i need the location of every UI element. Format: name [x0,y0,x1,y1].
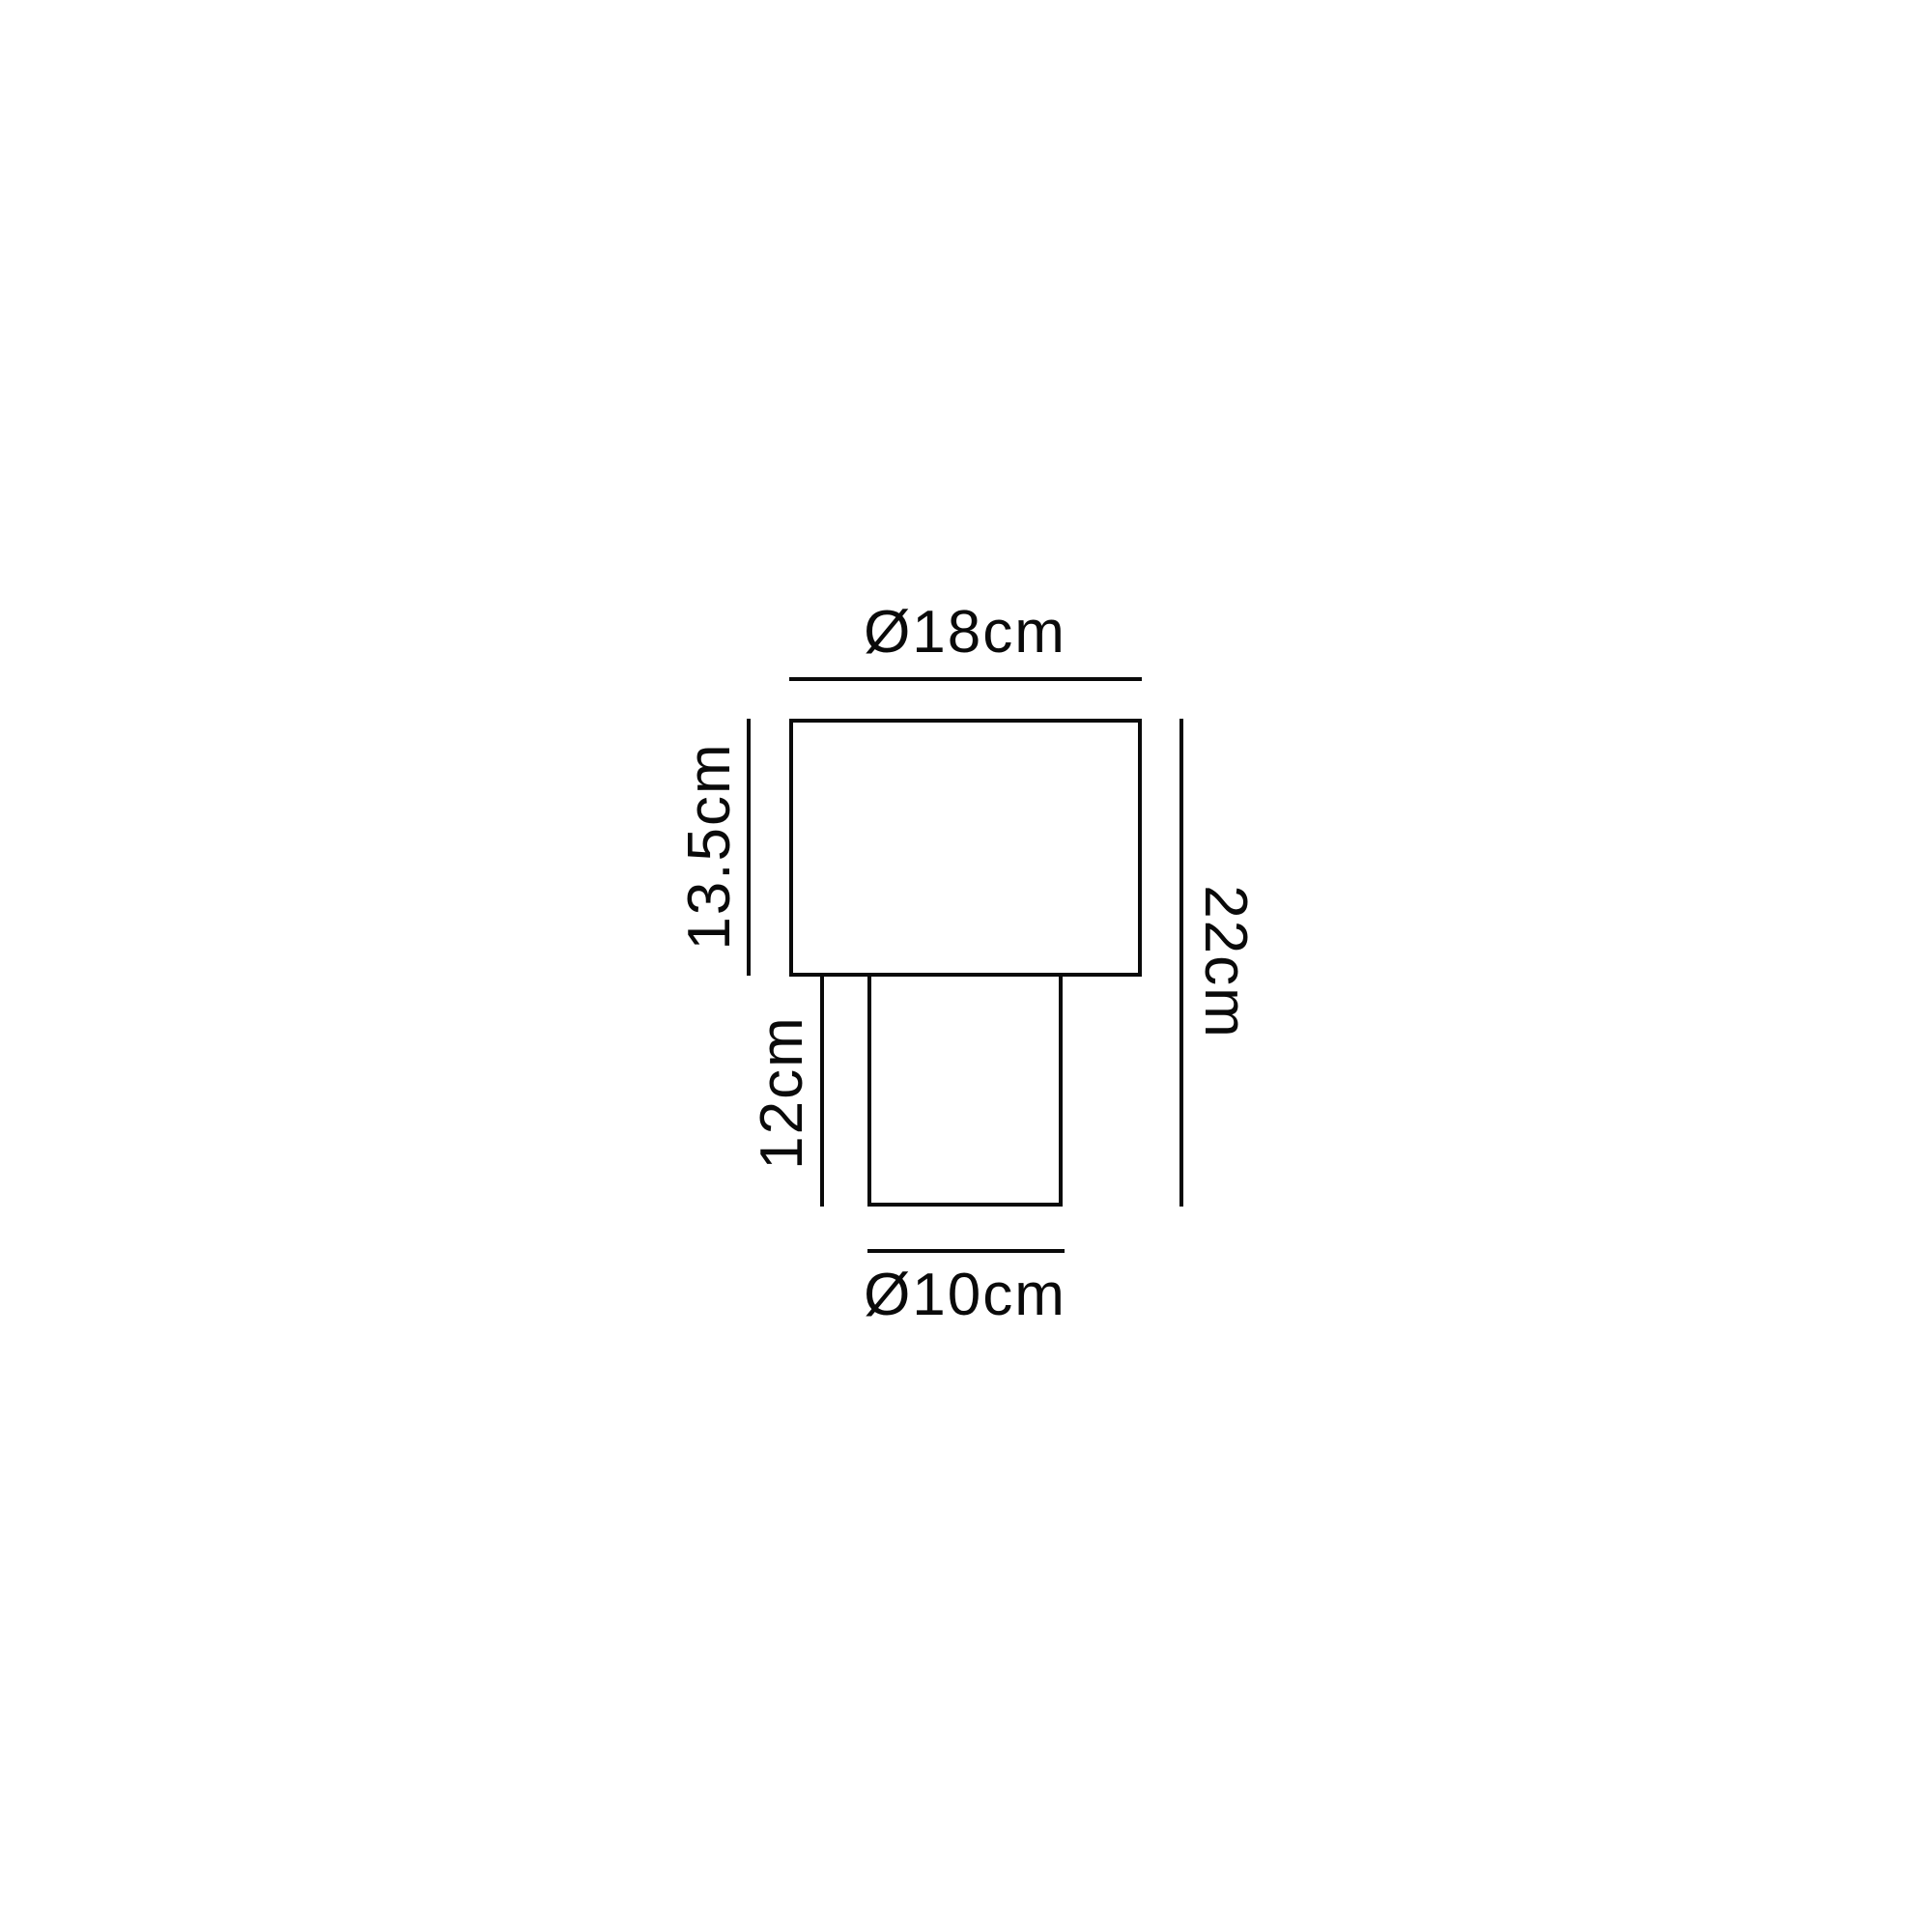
base-height-dimension-line [820,977,824,1207]
lamp-shade-outline [789,719,1142,977]
shade-diameter-dimension-line [789,677,1142,681]
total-height-label: 22cm [1196,856,1254,1068]
base-height-label: 12cm [753,986,811,1199]
shade-diameter-label: Ø18cm [772,599,1158,667]
shade-height-label: 13.5cm [681,721,739,972]
shade-height-dimension-line [747,719,751,976]
base-diameter-label: Ø10cm [772,1262,1158,1329]
lamp-dimension-diagram: Ø18cm 13.5cm 12cm 22cm Ø10cm [0,0,1932,1932]
lamp-base-outline [867,973,1063,1207]
base-diameter-dimension-line [867,1249,1065,1253]
total-height-dimension-line [1179,719,1183,1207]
